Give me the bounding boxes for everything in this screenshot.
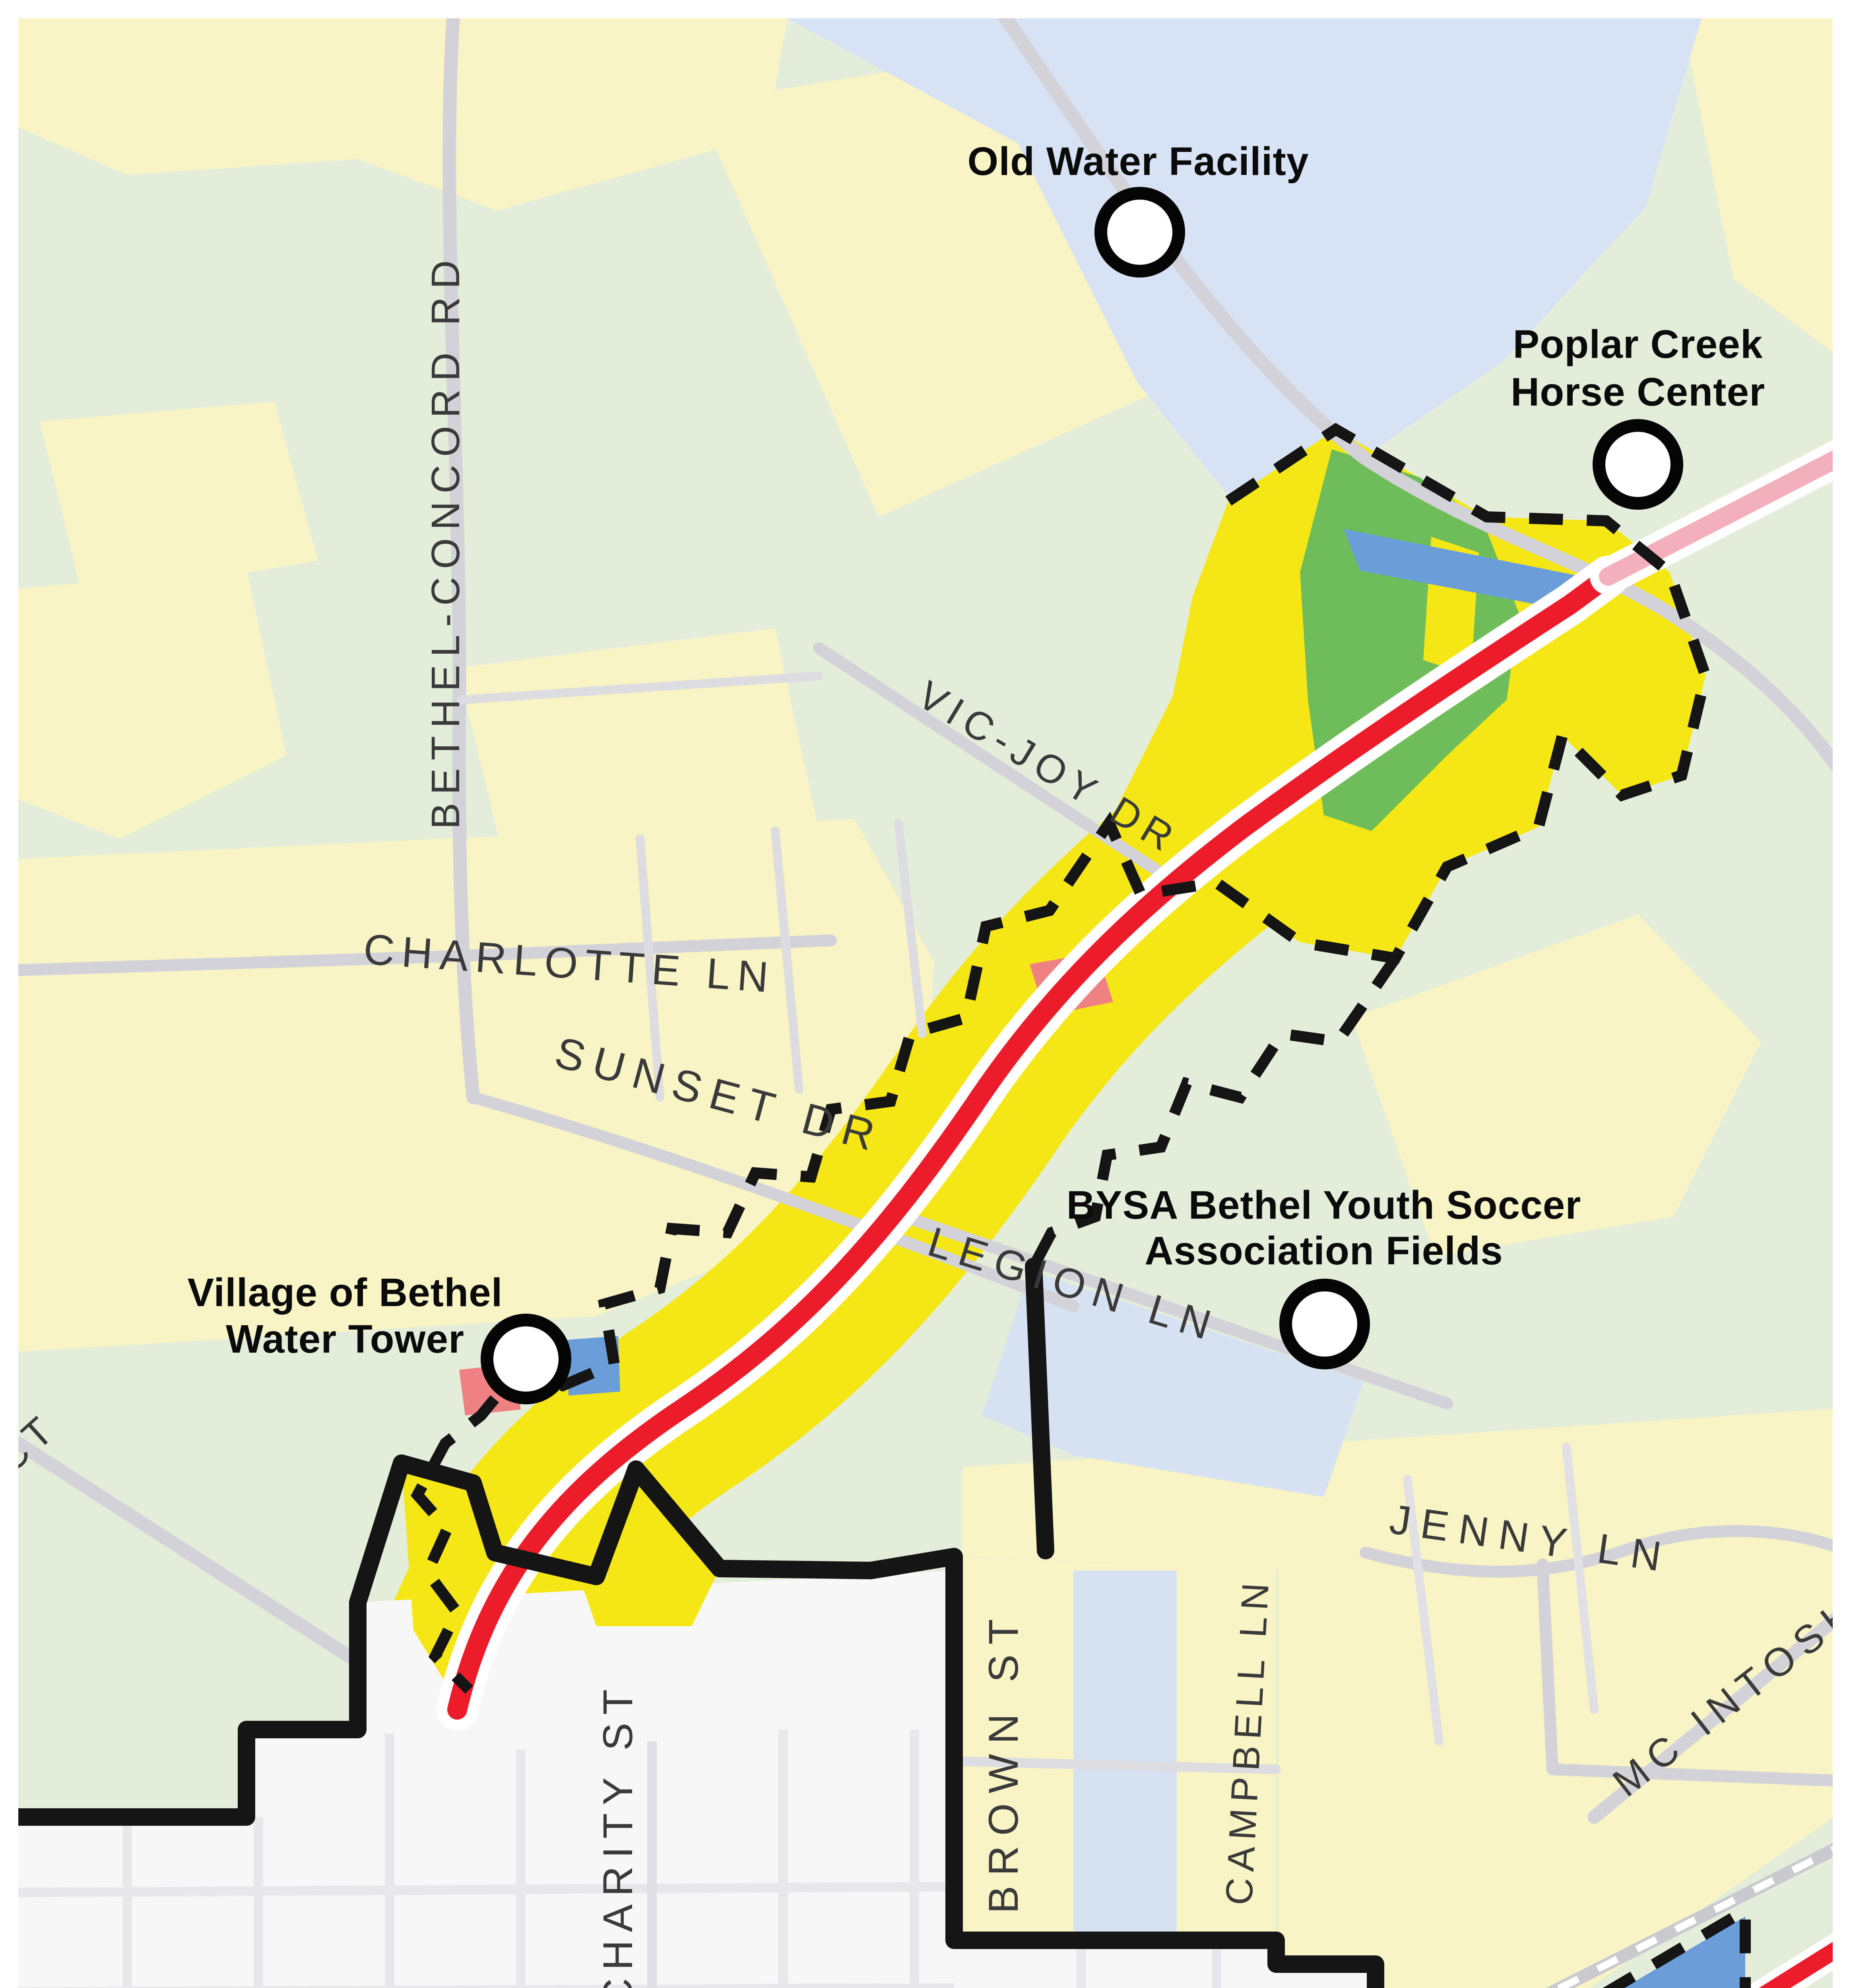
poi-label-line2: Association Fields — [1145, 1229, 1503, 1273]
poi-label-line1: BYSA Bethel Youth Soccer — [1067, 1183, 1581, 1227]
poi-label-line1: Village of Bethel — [187, 1270, 503, 1315]
poi-label-line2: Horse Center — [1511, 370, 1765, 414]
street-label-charity-st: CHARITY ST — [595, 1681, 641, 1988]
village-boundary-claw — [1034, 1266, 1046, 1551]
poi-circle-icon — [1599, 425, 1677, 503]
village-street — [18, 1887, 954, 1893]
poi-label-line1: Poplar Creek — [1513, 322, 1763, 367]
poi-circle-icon — [1286, 1285, 1364, 1363]
street-label-brown-st: BROWN ST — [980, 1609, 1027, 1914]
poi-label-line2: Water Tower — [226, 1317, 464, 1361]
page: { "map": { "street_labels": [ {"name": "… — [0, 0, 1851, 1988]
land-use-map: BETHEL-CONCORD RD CHARLOTTE LN SUNSET DR… — [0, 0, 1851, 1988]
poi-circle-icon — [1101, 193, 1179, 271]
poi-label: Old Water Facility — [968, 139, 1309, 184]
poi-circle-icon — [487, 1320, 565, 1398]
street-label-bethel-concord-rd: BETHEL-CONCORD RD — [423, 252, 468, 829]
brown-campbell-public-band — [1073, 1571, 1177, 1940]
